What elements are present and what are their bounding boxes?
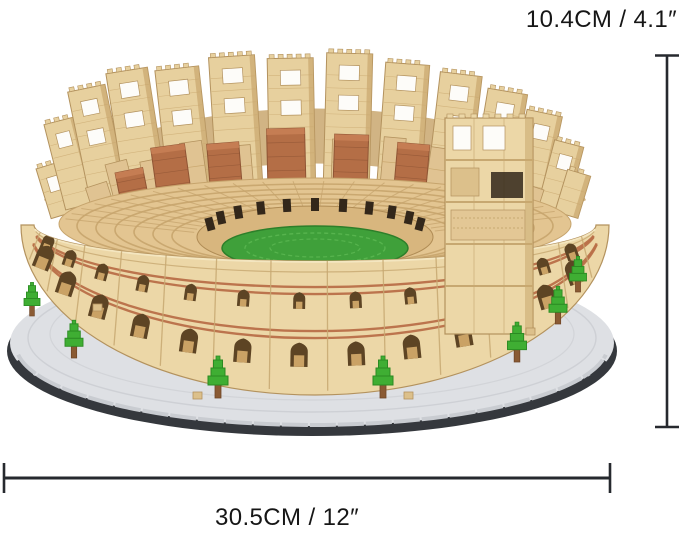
cutaway-section xyxy=(445,114,533,334)
product-dimension-figure: 10.4CM / 4.1″ 30.5CM / 12″ xyxy=(0,0,679,541)
height-dimension-line xyxy=(655,56,679,428)
colosseum-model xyxy=(7,49,617,436)
width-dimension-label: 30.5CM / 12″ xyxy=(4,504,570,532)
colosseum-model-illustration xyxy=(0,0,679,541)
height-dimension-label: 10.4CM / 4.1″ xyxy=(526,6,677,34)
width-dimension-line xyxy=(4,463,610,493)
